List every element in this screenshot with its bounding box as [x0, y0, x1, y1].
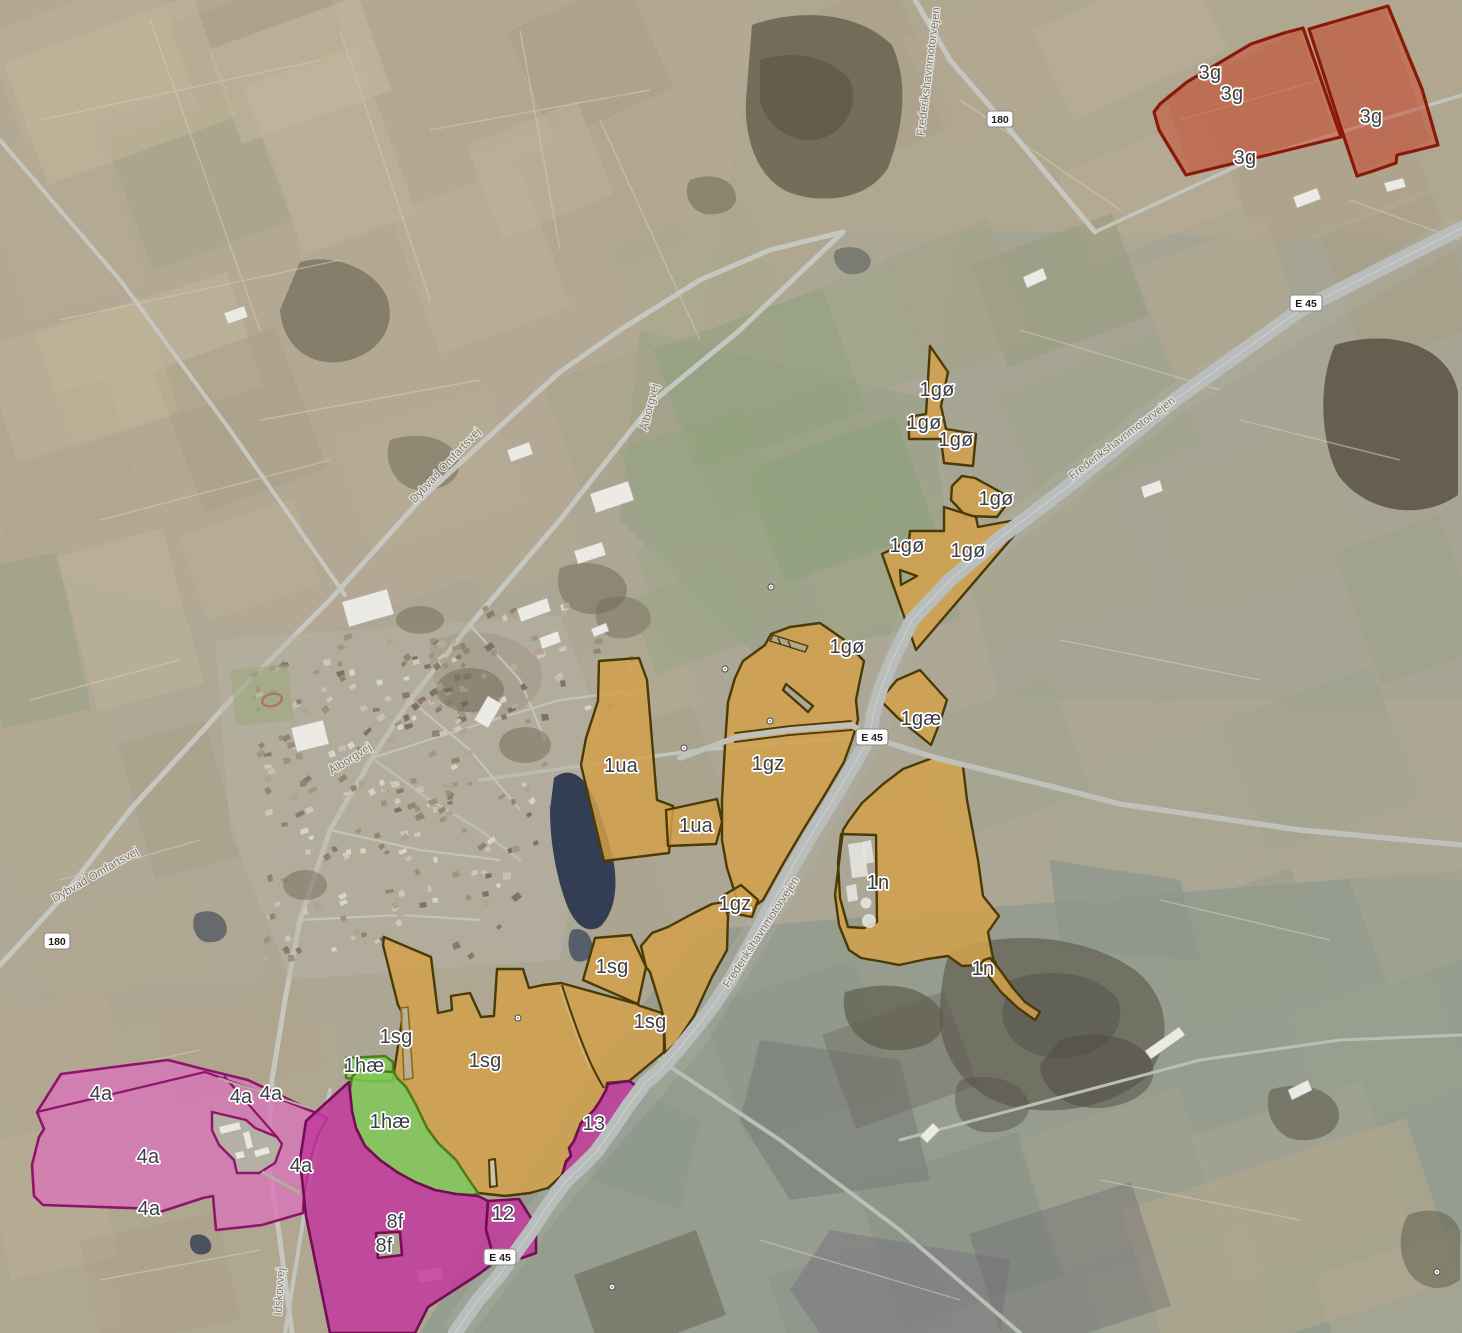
svg-text:1sg: 1sg: [596, 956, 629, 978]
svg-text:1n: 1n: [867, 872, 890, 894]
svg-text:E 45: E 45: [861, 732, 883, 744]
svg-text:3g: 3g: [1360, 106, 1383, 128]
svg-text:1gø: 1gø: [889, 535, 924, 557]
svg-text:3g: 3g: [1221, 83, 1244, 105]
svg-text:3g: 3g: [1199, 62, 1222, 84]
svg-text:8f: 8f: [386, 1211, 403, 1233]
svg-text:1hæ: 1hæ: [370, 1111, 411, 1133]
svg-text:3g: 3g: [1234, 147, 1257, 169]
svg-text:4a: 4a: [260, 1083, 283, 1105]
svg-text:180: 180: [48, 936, 66, 948]
svg-text:1gæ: 1gæ: [901, 708, 942, 730]
svg-text:1gø: 1gø: [906, 412, 941, 434]
svg-text:1sg: 1sg: [469, 1050, 502, 1072]
svg-text:4a: 4a: [230, 1086, 253, 1108]
svg-text:1ua: 1ua: [604, 755, 639, 777]
svg-text:1gø: 1gø: [978, 488, 1013, 510]
svg-text:13: 13: [583, 1113, 606, 1135]
svg-text:1gø: 1gø: [950, 540, 985, 562]
svg-text:1gz: 1gz: [752, 753, 785, 775]
svg-text:4a: 4a: [138, 1198, 161, 1220]
svg-text:1sg: 1sg: [380, 1026, 413, 1048]
svg-text:1gø: 1gø: [938, 429, 973, 451]
svg-text:12: 12: [492, 1203, 515, 1225]
svg-text:1hæ: 1hæ: [344, 1055, 385, 1077]
svg-text:4a: 4a: [290, 1155, 313, 1177]
svg-text:1n: 1n: [972, 958, 995, 980]
svg-text:1ua: 1ua: [679, 815, 714, 837]
svg-text:4a: 4a: [137, 1146, 160, 1168]
svg-text:E 45: E 45: [1295, 298, 1317, 310]
svg-text:E 45: E 45: [489, 1252, 511, 1264]
svg-text:8f: 8f: [375, 1235, 392, 1257]
svg-text:1sg: 1sg: [634, 1011, 667, 1033]
svg-text:4a: 4a: [90, 1083, 113, 1105]
svg-text:1gø: 1gø: [829, 636, 864, 658]
svg-text:1gø: 1gø: [919, 379, 954, 401]
svg-text:1gz: 1gz: [719, 893, 752, 915]
svg-text:180: 180: [991, 114, 1009, 126]
